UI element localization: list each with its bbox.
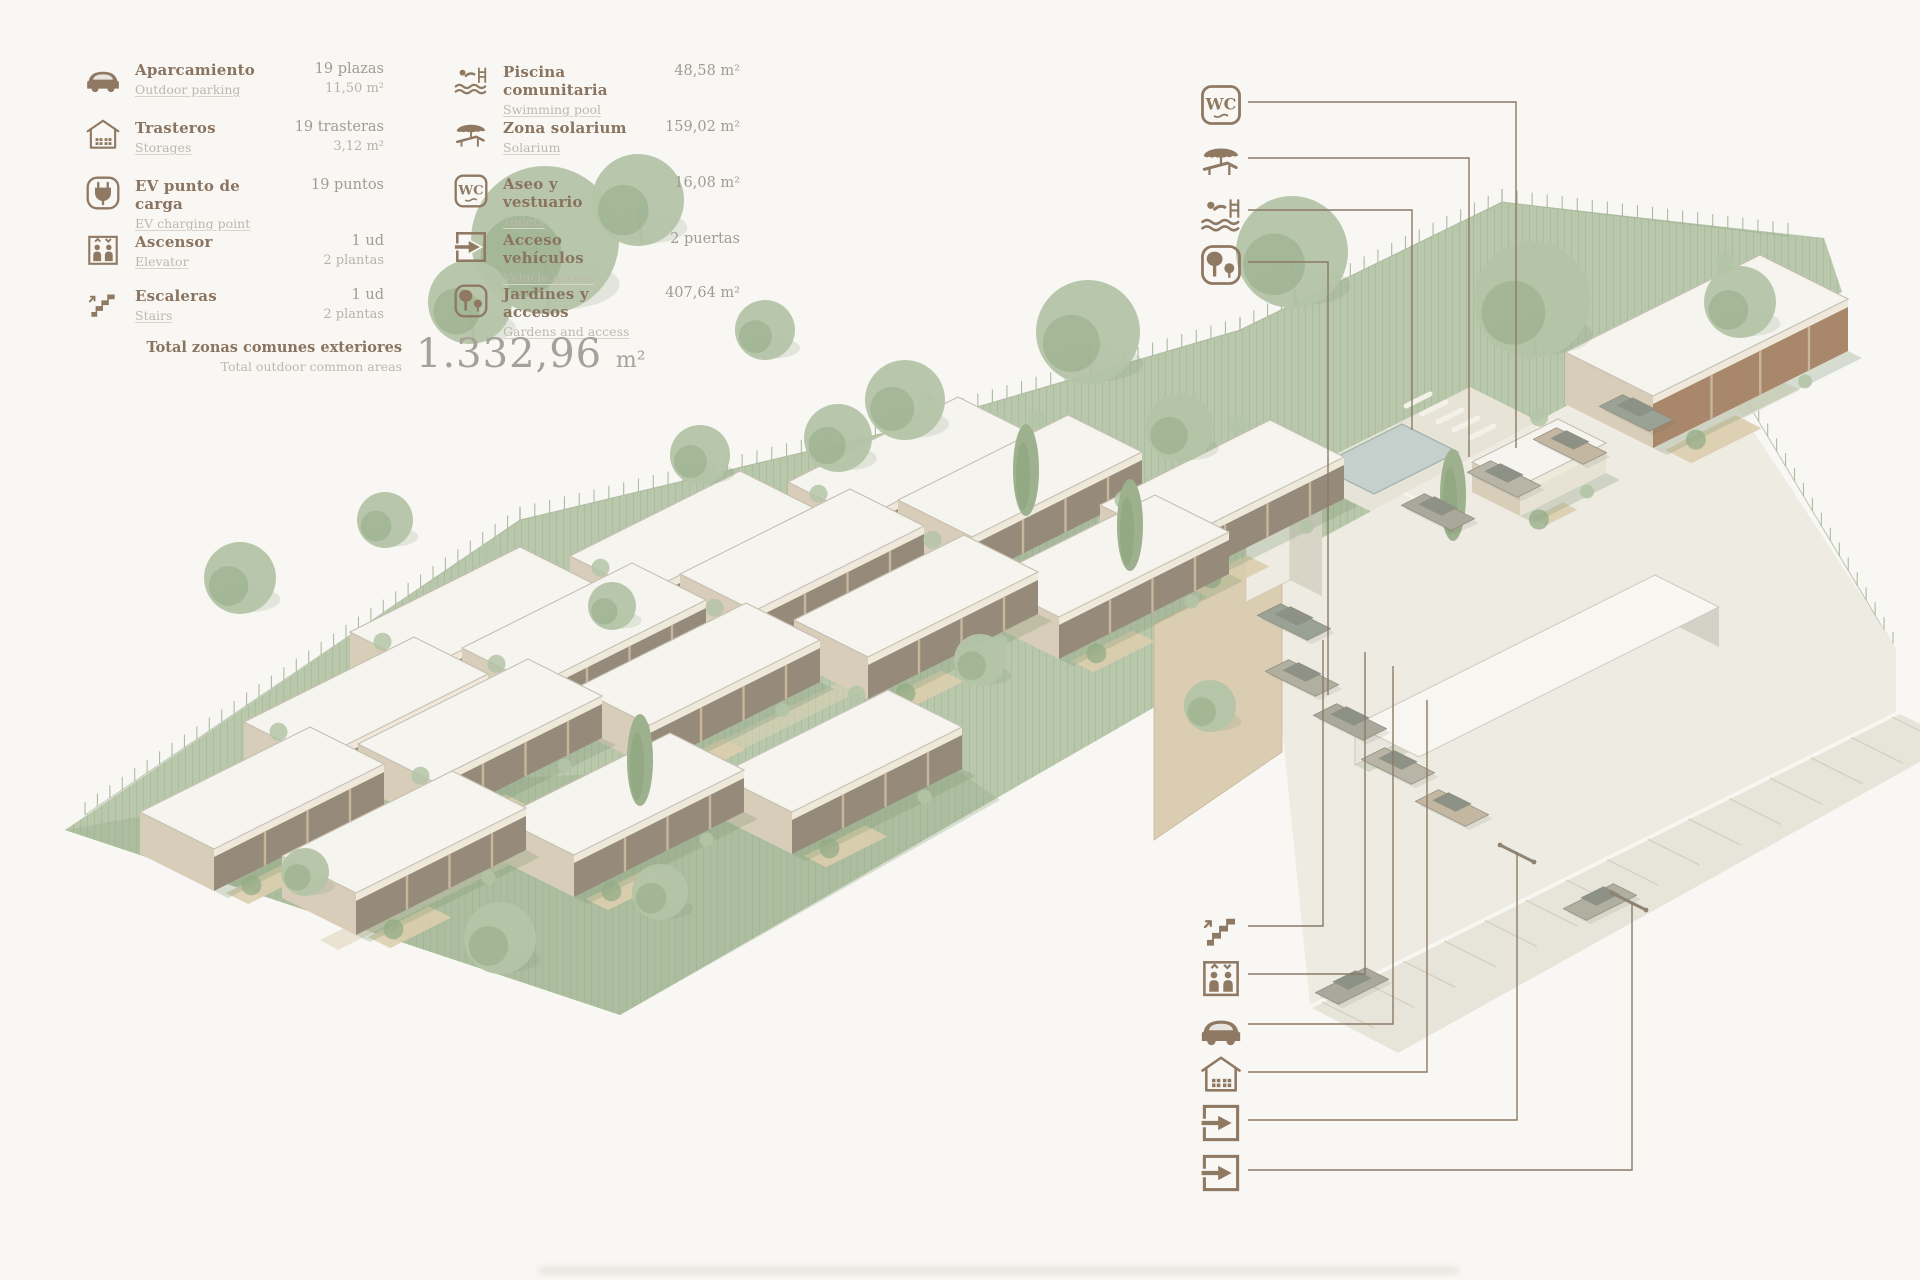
legend-icon-cell xyxy=(452,60,490,98)
total-label-en: Total outdoor common areas xyxy=(84,359,402,374)
legend-label-en: Toilets xyxy=(503,214,639,229)
vehicle-access-icon xyxy=(452,228,490,266)
gardens-icon xyxy=(452,282,490,320)
callout-gardens xyxy=(1198,242,1244,288)
solarium-icon xyxy=(452,116,490,154)
legend-label-es: Trasteros xyxy=(135,119,282,137)
ev-icon xyxy=(84,174,122,212)
legend-values: 2 puertas xyxy=(652,228,740,247)
legend-icon-cell xyxy=(84,116,122,154)
legend-values: 19 trasteras3,12 m² xyxy=(295,116,384,154)
callout-wc: WC xyxy=(1198,82,1244,128)
legend-item-vehicle-access: Acceso vehículos Vehicle access 2 puerta… xyxy=(452,228,740,285)
legend-icon-cell xyxy=(84,58,122,96)
legend-item-elevator: Ascensor Elevator 1 ud2 plantas xyxy=(84,230,384,269)
vehicle-access-icon xyxy=(1198,1150,1244,1196)
car-icon xyxy=(1198,1004,1244,1050)
legend-values: 19 plazas11,50 m² xyxy=(296,58,384,96)
stairs-icon xyxy=(1198,906,1244,952)
legend-label-es: Piscina comunitaria xyxy=(503,63,639,99)
legend-label-es: EV punto de carga xyxy=(135,177,283,213)
callout-solarium xyxy=(1198,138,1244,184)
legend-item-ev: EV punto de carga EV charging point 19 p… xyxy=(84,174,384,231)
legend-item-stairs: Escaleras Stairs 1 ud2 plantas xyxy=(84,284,384,323)
wc-icon: WC xyxy=(1198,82,1244,128)
legend-label-es: Ascensor xyxy=(135,233,283,251)
legend-icon-cell xyxy=(84,284,122,322)
legend-values: 19 puntos xyxy=(296,174,384,193)
legend-label-en: EV charging point xyxy=(135,216,283,231)
callout-vehicle-access xyxy=(1198,1100,1244,1146)
wc-icon: WC xyxy=(452,172,490,210)
legend-label-es: Zona solarium xyxy=(503,119,639,137)
svg-text:WC: WC xyxy=(1205,94,1237,113)
legend-label-es: Jardines y accesos xyxy=(503,285,639,321)
total-label-es: Total zonas comunes exteriores xyxy=(84,339,402,356)
callout-stairs xyxy=(1198,906,1244,952)
solarium-icon xyxy=(1198,138,1244,184)
legend-icon-cell xyxy=(84,174,122,212)
legend-values: 16,08 m² xyxy=(652,172,740,191)
car-icon xyxy=(84,58,122,96)
total-value: 1.332,96 m² xyxy=(416,332,646,376)
legend-values: 1 ud2 plantas xyxy=(296,230,384,268)
legend-values: 48,58 m² xyxy=(652,60,740,79)
pool-icon xyxy=(452,60,490,98)
legend-item-storage: Trasteros Storages 19 trasteras3,12 m² xyxy=(84,116,384,155)
legend-icon-cell xyxy=(452,228,490,266)
stairs-icon xyxy=(84,284,122,322)
legend-item-solarium: Zona solarium Solarium 159,02 m² xyxy=(452,116,740,155)
legend-label-en: Stairs xyxy=(135,308,283,323)
vehicle-access-icon xyxy=(1198,1100,1244,1146)
elevator-icon xyxy=(1198,954,1244,1000)
legend-icon-cell xyxy=(452,116,490,154)
legend-label-es: Aparcamiento xyxy=(135,61,283,79)
legend-label-en: Outdoor parking xyxy=(135,82,283,97)
callout-pool xyxy=(1198,190,1244,236)
storage-icon xyxy=(84,116,122,154)
total-outdoor-areas: Total zonas comunes exteriores Total out… xyxy=(84,332,646,376)
callout-car xyxy=(1198,1004,1244,1050)
legend-values: 407,64 m² xyxy=(652,282,740,301)
legend-label-es: Escaleras xyxy=(135,287,283,305)
legend-values: 1 ud2 plantas xyxy=(296,284,384,322)
legend-item-wc: WC Aseo y vestuario Toilets 16,08 m² xyxy=(452,172,740,229)
legend-icon-cell xyxy=(452,282,490,320)
legend-item-pool: Piscina comunitaria Swimming pool 48,58 … xyxy=(452,60,740,117)
legend-label-en: Solarium xyxy=(503,140,639,155)
svg-text:WC: WC xyxy=(457,184,483,199)
legend-icon-cell: WC xyxy=(452,172,490,210)
callout-storage xyxy=(1198,1052,1244,1098)
pool-icon xyxy=(1198,190,1244,236)
legend-values: 159,02 m² xyxy=(652,116,740,135)
legend-label-es: Acceso vehículos xyxy=(503,231,639,267)
gardens-icon xyxy=(1198,242,1244,288)
elevator-icon xyxy=(84,230,122,268)
site-plan-page: Aparcamiento Outdoor parking 19 plazas11… xyxy=(0,0,1920,1280)
legend-label-en: Storages xyxy=(135,140,282,155)
legend-label-en: Swimming pool xyxy=(503,102,639,117)
page-edge-shadow xyxy=(538,1267,1460,1274)
callout-vehicle-access xyxy=(1198,1150,1244,1196)
callout-elevator xyxy=(1198,954,1244,1000)
legend-icon-cell xyxy=(84,230,122,268)
storage-icon xyxy=(1198,1052,1244,1098)
legend-item-car: Aparcamiento Outdoor parking 19 plazas11… xyxy=(84,58,384,97)
legend-label-es: Aseo y vestuario xyxy=(503,175,639,211)
legend-label-en: Elevator xyxy=(135,254,283,269)
